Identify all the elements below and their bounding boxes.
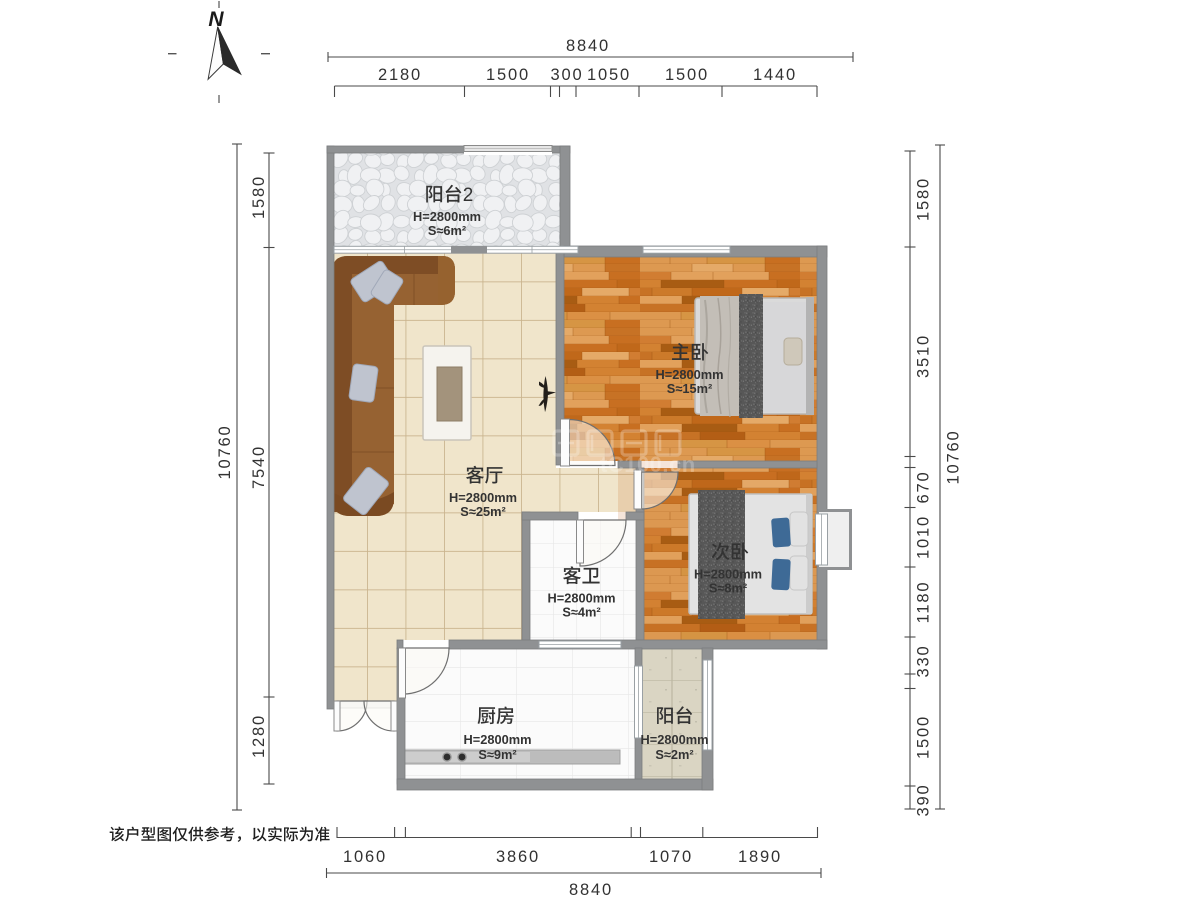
svg-text:S≈25m²: S≈25m²	[460, 504, 505, 519]
svg-text:tC100.cn: tC100.cn	[600, 452, 696, 477]
svg-text:1500: 1500	[486, 66, 530, 84]
svg-text:H=2800mm: H=2800mm	[548, 591, 616, 606]
svg-text:H=2800mm: H=2800mm	[464, 732, 532, 747]
svg-text:S≈2m²: S≈2m²	[655, 747, 693, 762]
svg-text:1050: 1050	[587, 66, 631, 84]
svg-text:330: 330	[915, 645, 933, 678]
svg-text:2: 2	[463, 185, 474, 206]
svg-text:1180: 1180	[915, 581, 933, 624]
svg-text:3860: 3860	[496, 848, 540, 866]
svg-text:10760: 10760	[945, 430, 963, 485]
svg-text:H=2800mm: H=2800mm	[449, 490, 517, 505]
svg-text:8840: 8840	[566, 37, 610, 55]
svg-text:390: 390	[915, 784, 933, 817]
svg-text:1280: 1280	[250, 714, 268, 758]
svg-text:300: 300	[551, 66, 584, 84]
svg-text:10760: 10760	[216, 425, 234, 480]
svg-text:1070: 1070	[649, 848, 693, 866]
svg-text:H=2800mm: H=2800mm	[656, 367, 724, 382]
svg-text:1580: 1580	[250, 175, 268, 219]
svg-text:H=2800mm: H=2800mm	[694, 567, 762, 582]
svg-text:S≈6m²: S≈6m²	[428, 223, 466, 238]
svg-text:S≈9m²: S≈9m²	[478, 747, 516, 762]
svg-text:S≈15m²: S≈15m²	[667, 381, 712, 396]
svg-text:1500: 1500	[915, 715, 933, 759]
svg-text:1440: 1440	[753, 66, 797, 84]
svg-text:1890: 1890	[738, 848, 782, 866]
svg-text:670: 670	[915, 471, 933, 504]
svg-text:1500: 1500	[665, 66, 709, 84]
svg-text:1010: 1010	[915, 515, 933, 559]
svg-text:3510: 3510	[915, 334, 933, 378]
svg-text:8840: 8840	[569, 881, 613, 899]
svg-text:1580: 1580	[915, 177, 933, 221]
svg-text:7540: 7540	[250, 445, 268, 489]
svg-text:S≈8m²: S≈8m²	[709, 580, 747, 595]
svg-text:H=2800mm: H=2800mm	[641, 732, 709, 747]
svg-text:H=2800mm: H=2800mm	[413, 209, 481, 224]
svg-text:S≈4m²: S≈4m²	[562, 604, 600, 619]
svg-text:1060: 1060	[343, 848, 387, 866]
svg-text:2180: 2180	[378, 66, 422, 84]
svg-text:N: N	[208, 8, 224, 31]
